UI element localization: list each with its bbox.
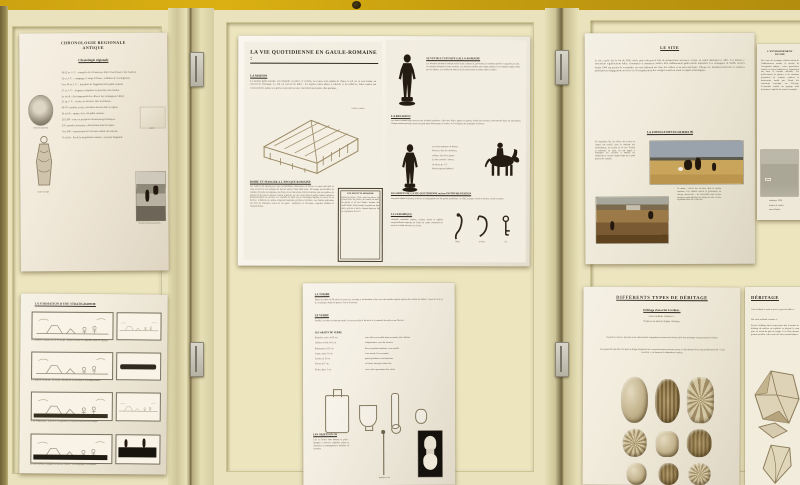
excavation-title: LE SITE — [585, 45, 755, 51]
recipe-box: UNE RECETTE ROMAINE Patina de poires : f… — [338, 188, 383, 262]
wall-hook — [352, 1, 361, 9]
chronology-entry: Vers 40 av. J.-C. : fondation de l'agglo… — [62, 82, 160, 86]
ceramique-heading: LA CERAMIQUE — [391, 213, 412, 216]
exhibition-panels-photo: CHRONOLOGIE REGIONALE ANTIQUE Chronologi… — [0, 0, 800, 485]
glass-list-heading: LES OBJETS DE VERRE — [315, 331, 342, 334]
religion-heading: LA RELIGION — [391, 114, 410, 118]
strip-panel — [31, 311, 113, 340]
balsamaire-drawing — [391, 393, 399, 429]
map-label: plan — [765, 178, 771, 181]
figure-caption-line: Musée régional (photos) — [432, 168, 478, 171]
glass-object-name: Coupe, diam. 10 cm — [315, 353, 365, 356]
debitage2-line1: Une autre méthode consiste à : — [751, 319, 799, 322]
bone-object-photo — [418, 431, 442, 477]
old-excavation-photo — [136, 172, 165, 221]
maison-heading: LA MAISON — [250, 74, 267, 78]
strip-panel — [116, 392, 161, 421]
debitage-line1: Cette méthode consiste à : — [583, 315, 740, 319]
objets-paragraph: Les petits objets de bronze et de fer ac… — [391, 198, 523, 201]
chronology-title-line2: ANTIQUE — [19, 44, 167, 50]
dig-photo — [596, 197, 668, 243]
figure-caption-line: Les deux statuettes de bronze : — [432, 146, 478, 149]
coin-photo — [29, 95, 53, 125]
hook-caption: crochet — [472, 241, 492, 244]
flint-drawing — [658, 463, 678, 485]
glass-object-desc: flacon à parfum tubulaire, verre soufflé — [365, 347, 441, 350]
glass-object-row: Balsamaire, ht 12 cm flacon à parfum tub… — [315, 347, 445, 350]
flint-drawing — [687, 377, 714, 423]
chronology-entry: Ve siècle : fin de la domination romaine… — [62, 135, 160, 139]
legend-item: zone détruite — [761, 209, 800, 212]
flint-drawing — [655, 379, 680, 423]
glass-object-name: Balsamaire, ht 12 cm — [315, 348, 365, 351]
mars-statuette — [398, 140, 422, 196]
hinge — [190, 342, 204, 377]
figure-caption-line: IIe siècle ap. J.-C. — [432, 164, 478, 167]
poster-debitage-right: DÉBITAGE Cette méthode a suivi de près l… — [745, 287, 800, 485]
strip-panel — [31, 391, 113, 421]
poster-stratigraphy: LA FORMATION D'UNE STRATIGRAPHIE 1. L'ho… — [19, 293, 168, 474]
poster-debitage-levallois: DIFFÉRENTS TYPES DE DÉBITAGE Débitage d'… — [582, 287, 740, 485]
strip-panel — [30, 433, 112, 464]
hook-drawing — [476, 212, 490, 240]
verre-heading: LE VERRE — [315, 314, 329, 317]
flint-drawing — [688, 463, 710, 485]
religion-paragraph: Les dieux romains sont associés aux divi… — [391, 120, 521, 126]
debitage2-title: DÉBITAGE — [751, 295, 800, 300]
glass-object-name: Perles, diam. 1 cm — [315, 369, 365, 372]
glass-object-desc: verre moulé, lèvre arrondie — [365, 353, 441, 356]
debitage-subtitle: Débitage d'un éclat Levallois : — [583, 308, 740, 313]
flint-drawing — [687, 429, 712, 457]
glass-object-desc: verre bleu-vert soufflé dans un moule, a… — [365, 337, 441, 340]
bone-heading: LES OBJETS EN OS — [313, 433, 337, 436]
strip-caption-1: 1. L'homme s'installe sur un sol vierge … — [31, 339, 159, 343]
map-legend: sondages 1996limites de fouillezone détr… — [761, 200, 800, 214]
strip-caption-4: 4. Une nouvelle occupation scelle les co… — [30, 463, 158, 467]
figure-caption-line: Mercure, dieu du commerce, — [432, 151, 478, 154]
strip-caption-2: 2. L'habitat est détruit ; les ruines s'… — [31, 379, 159, 383]
recipe-text: Patina de poires : faire cuire les poire… — [341, 196, 379, 213]
debitage2-paragraph: Selon le débitage direct au percuteur du… — [751, 325, 799, 336]
debitage-title: DIFFÉRENTS TYPES DE DÉBITAGE — [583, 295, 740, 301]
excavation-column1: En septembre 96, les élèves des écoles d… — [595, 141, 635, 161]
horse-rider-statuette — [478, 134, 524, 180]
strip-caption-3: 3. Le temps passe : la terre et la végét… — [31, 420, 159, 424]
coin-caption: monnaie gauloise — [24, 127, 58, 130]
bottle-drawing — [325, 395, 349, 433]
tombe-heading: LA TOMBE — [315, 293, 330, 296]
figure-caption-line: et Mars, dieu de la guerre. — [432, 155, 478, 158]
key-caption: clé — [496, 241, 516, 244]
poster-chronology: CHRONOLOGIE REGIONALE ANTIQUE Chronologi… — [19, 32, 169, 271]
fibula-drawing — [452, 212, 465, 240]
poster-daily-life: LA VIE QUOTIDIENNE EN GAULE-ROMAINE : LA… — [238, 36, 531, 267]
glass-object-name: Flacon, ht 7 cm — [315, 363, 365, 366]
tombe-paragraph: Datée du milieu du IIe siècle de notre è… — [315, 299, 443, 305]
site-map-image: plan — [761, 150, 798, 196]
excavation-section-heading: LA FOUILLE DES ECOLIERS 96 — [585, 130, 755, 135]
daily-life-right-page: SE VETIR A L'EPOQUE GALLO-ROMAINE Les ho… — [386, 40, 527, 262]
glass-object-desc: verre coloré provenant d'un collier — [365, 368, 441, 371]
figure-captions: Les deux statuettes de bronze :Mercure, … — [432, 146, 478, 173]
environment-heading-line2: DU SITE — [757, 53, 800, 56]
glass-object-row: Gobelet ovoïde, ht 9 cm à dépressions, v… — [315, 342, 445, 345]
daily-life-left-page: LA VIE QUOTIDIENNE EN GAULE-ROMAINE : LA… — [244, 42, 383, 260]
strip-panel — [116, 312, 161, 340]
poster-environment-sheet: L'ENVIRONNEMENT DU SITE Une carte des so… — [757, 44, 800, 220]
legend-item: sondages 1996 — [761, 200, 800, 203]
chronology-entry: 52 av. J.-C. : campagne et siège d'Alési… — [61, 76, 159, 80]
glass-object-row: Cruche, ht 15 cm panse globulaire, fond … — [315, 358, 445, 361]
hinge — [190, 52, 204, 87]
glass-object-row: Bouteille carrée, ht 18 cm verre bleu-ve… — [315, 337, 445, 340]
glass-object-name: Bouteille carrée, ht 18 cm — [315, 337, 365, 340]
debitage-paragraph2: La préparation spéciale d'un plan de fra… — [597, 349, 727, 355]
chronology-entry: Ier siècle : développement des villes et… — [62, 94, 160, 98]
goblet-drawing — [359, 405, 377, 427]
glass-object-name: Gobelet ovoïde, ht 9 cm — [315, 342, 365, 345]
hinge — [555, 50, 569, 85]
glass-object-desc: col étroit, fond plat, bulle d'air — [365, 363, 441, 366]
verre-paragraph: Soufflé à la volée ou dans un moule, le … — [315, 320, 443, 323]
glass-object-row: Coupe, diam. 10 cm verre moulé, lèvre ar… — [315, 353, 445, 356]
daily-life-title: LA VIE QUOTIDIENNE EN GAULE-ROMAINE : — [250, 50, 378, 64]
chronology-subtitle: Chronologie régionale — [19, 57, 167, 62]
key-drawing — [500, 214, 512, 239]
toga-statue-drawing — [31, 135, 57, 189]
fibula-caption: fibule — [448, 241, 468, 244]
chronology-entry: 27 av. J.-C. : Auguste réorganise les pr… — [62, 88, 160, 92]
field-photo — [650, 141, 743, 184]
strip-panel — [115, 434, 160, 464]
pin-caption: épingle en os — [371, 477, 397, 480]
mercury-statuette — [394, 54, 420, 106]
legend-item: limites de fouille — [761, 205, 800, 208]
glass-object-name: Cruche, ht 15 cm — [315, 358, 365, 361]
figure-caption-line: Le dieu cavalier : bronze, — [432, 159, 478, 162]
debitage-paragraph1: A partir de celui-ci, procéder à des enl… — [597, 337, 727, 341]
environment-paragraph: Une carte des sondages réalisés autour d… — [761, 60, 799, 91]
debitage-line2: Préparer un plan de frappe circulaire — [583, 320, 740, 324]
roman-house-drawing — [258, 112, 364, 176]
flint-flake-drawing — [754, 440, 797, 485]
vetir-heading: SE VETIR A L'EPOQUE GALLO-ROMAINE — [426, 57, 480, 60]
excavation-caption: Ci-contre : relevé des niveaux dans la g… — [677, 188, 721, 202]
ceramique-paragraph: Vaisselle commune sombre, cruches claire… — [391, 219, 443, 228]
hinge — [555, 342, 569, 377]
strip-panel — [116, 352, 161, 380]
sketch-caption: relevé — [138, 127, 166, 130]
stratigraphy-title: LA FORMATION D'UNE STRATIGRAPHIE — [35, 301, 168, 306]
glass-object-list: Bouteille carrée, ht 18 cm verre bleu-ve… — [315, 337, 445, 374]
recipe-title: UNE RECETTE ROMAINE — [341, 193, 379, 195]
poster-excavation: LE SITE Le site, repéré dès la fin du XI… — [585, 33, 756, 265]
yellow-wall-strip — [0, 0, 800, 10]
flint-core-drawing — [749, 365, 800, 439]
chronology-entry: 21 ap. J.-C. : révolte de Sacrovir chez … — [62, 100, 160, 104]
flint-drawing — [626, 463, 646, 485]
poster-glass-finds: LA TOMBE Datée du milieu du IIe siècle d… — [303, 283, 456, 485]
excavation-intro: Le site, repéré dès la fin du XIXe siècl… — [595, 59, 745, 73]
bone-pin-drawing — [383, 433, 384, 475]
boire-heading: BOIRE ET MANGER A L'EPOQUE ROMAINE — [250, 180, 311, 184]
flint-drawing — [621, 377, 648, 423]
glass-object-row: Flacon, ht 7 cm col étroit, fond plat, b… — [315, 363, 445, 366]
photo-caption: vue des fouilles anciennes — [130, 222, 168, 225]
glass-object-desc: à dépressions, verre fin incolore — [365, 342, 441, 345]
boire-paragraph: Les Gaulois ont adopté peu à peu les hab… — [250, 186, 334, 209]
small-jug-drawing — [415, 409, 427, 424]
flint-drawing — [623, 429, 647, 457]
chronology-entry: 58-52 av. J.-C. : conquête de la Gaule p… — [61, 71, 159, 75]
chronology-entries: 58-52 av. J.-C. : conquête de la Gaule p… — [61, 71, 160, 264]
house-caption: toiture en tuiles — [340, 108, 376, 111]
glass-object-desc: panse globulaire, fond annulaire — [365, 358, 441, 361]
glass-object-row: Perles, diam. 1 cm verre coloré provenan… — [315, 368, 445, 371]
vetir-paragraph: Les hommes portent la tunique serrée d'u… — [426, 63, 520, 72]
survey-sketch — [140, 106, 166, 128]
maison-paragraph: La maison gallo-romaine est construite e… — [250, 80, 376, 90]
objets-heading: LES OBJETS DE LA VIE QUOTIDIENNE ou leur… — [391, 192, 523, 195]
flint-drawing — [656, 431, 679, 457]
toga-caption: statue en toge — [24, 191, 62, 194]
strip-panel — [31, 351, 113, 380]
bone-paragraph: L'os et l'ivoire sont tournés et polis :… — [313, 439, 349, 451]
debitage2-subtitle: Cette méthode a suivi de près le geste d… — [751, 309, 799, 312]
panel-left-edge — [0, 6, 8, 485]
